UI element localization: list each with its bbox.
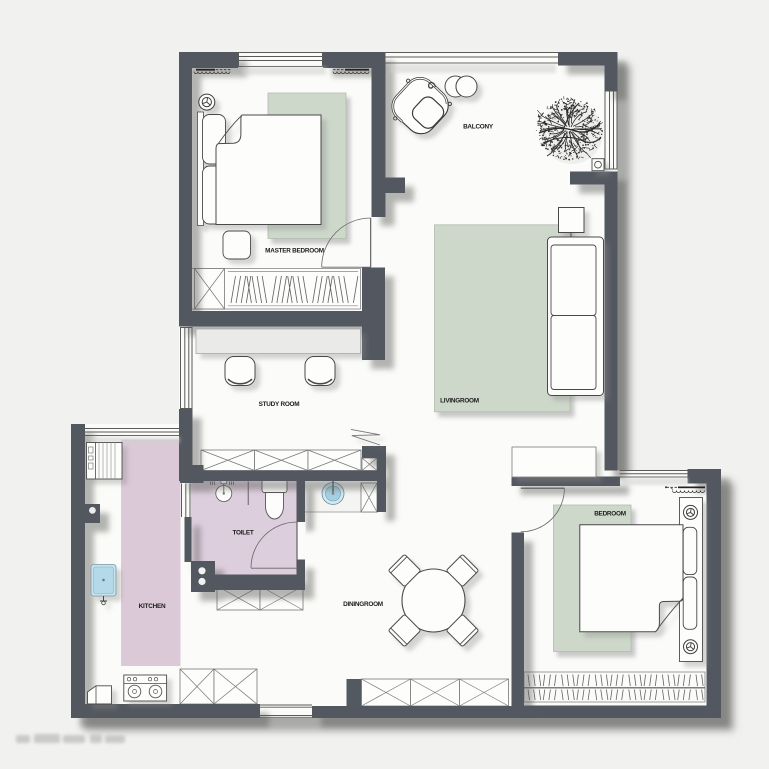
svg-text:MASTER BEDROOM: MASTER BEDROOM: [265, 248, 324, 255]
svg-text:LIVINGROOM: LIVINGROOM: [440, 398, 479, 405]
svg-text:BALCONY: BALCONY: [463, 124, 494, 131]
svg-text:TOILET: TOILET: [232, 530, 253, 537]
svg-text:KITCHEN: KITCHEN: [139, 603, 166, 610]
svg-text:STUDY ROOM: STUDY ROOM: [259, 401, 300, 408]
svg-text:DININGROOM: DININGROOM: [343, 601, 383, 608]
svg-text:BEDROOM: BEDROOM: [594, 511, 626, 518]
